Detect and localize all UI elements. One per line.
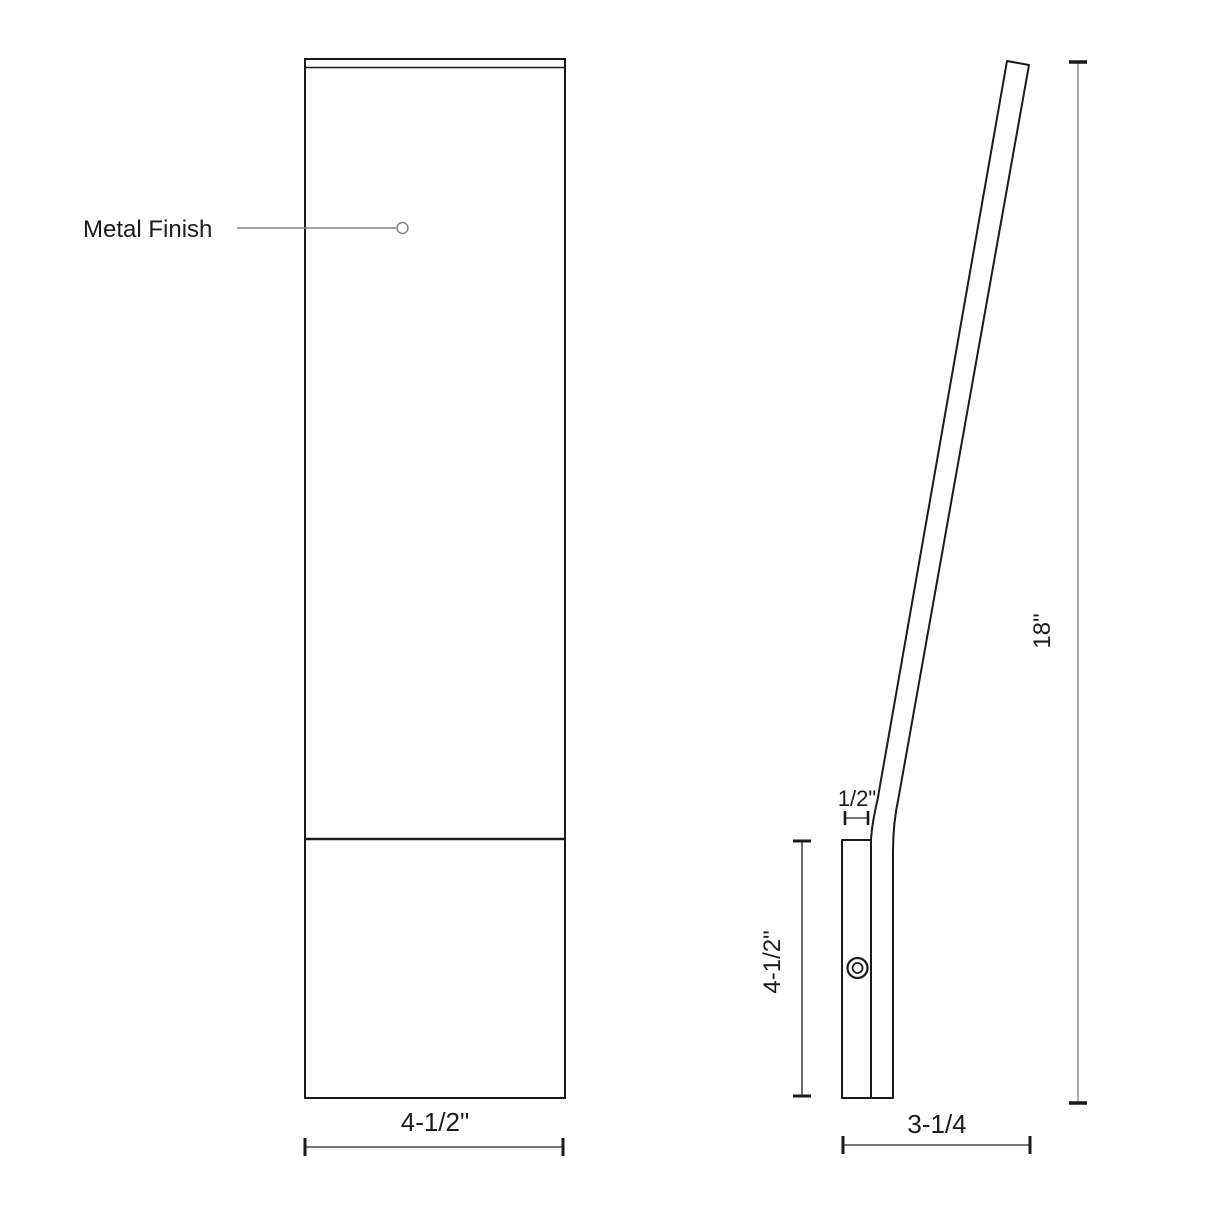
side-plate-height-dim-text: 4-1/2" — [759, 930, 786, 993]
drawing-background — [0, 0, 1214, 1214]
technical-drawing-canvas: Metal Finish 4-1/2" 1/2" 4-1/2" 18" — [0, 0, 1214, 1214]
leader-dot-icon — [397, 223, 408, 234]
mounting-screw-inner-icon — [853, 963, 863, 973]
side-depth-dim-text: 3-1/4 — [907, 1109, 966, 1139]
side-overall-height-dim-text: 18" — [1029, 613, 1056, 648]
side-thickness-dim-text: 1/2" — [838, 786, 876, 811]
metal-finish-label: Metal Finish — [83, 216, 212, 243]
front-width-dim-text: 4-1/2" — [401, 1107, 470, 1137]
